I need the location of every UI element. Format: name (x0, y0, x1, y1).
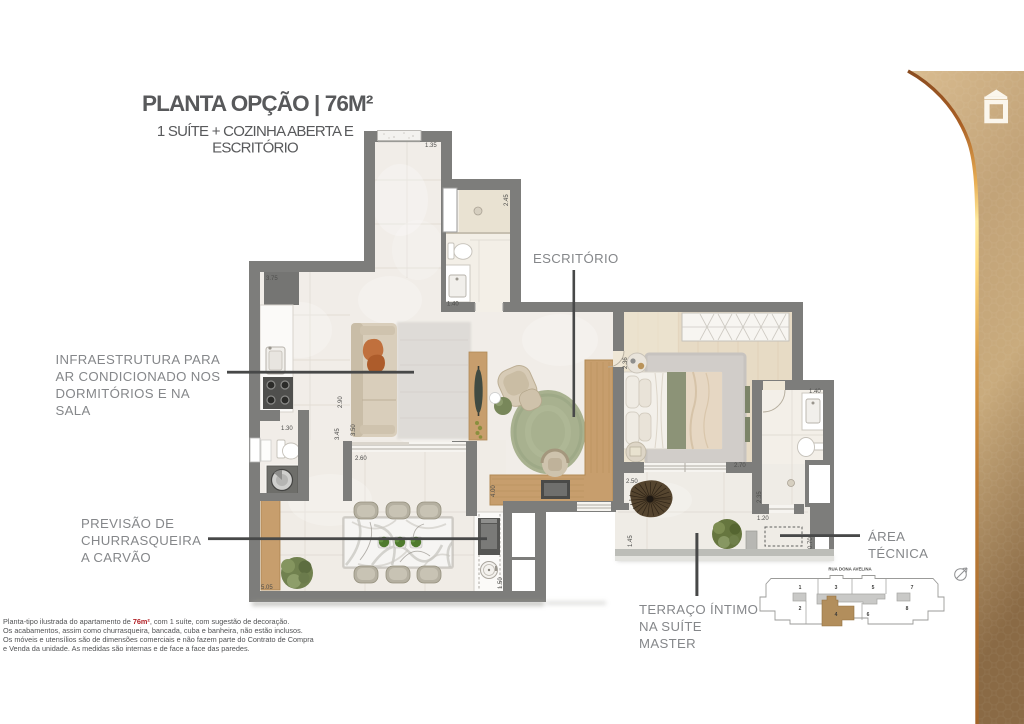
svg-text:2.60: 2.60 (355, 456, 367, 462)
svg-text:7: 7 (911, 585, 914, 591)
svg-text:2: 2 (799, 606, 802, 612)
svg-text:1.50: 1.50 (498, 577, 504, 589)
svg-text:2.90: 2.90 (338, 396, 344, 408)
svg-text:Os acabamentos, assim como chu: Os acabamentos, assim como churrasqueira… (3, 626, 303, 635)
svg-text:1.45: 1.45 (628, 535, 634, 547)
svg-text:1: 1 (799, 585, 802, 591)
svg-text:0.70: 0.70 (808, 537, 814, 549)
svg-text:e Venda da unidade. As medidas: e Venda da unidade. As medidas são inter… (3, 644, 250, 653)
svg-text:PREVISÃO DE: PREVISÃO DE (81, 516, 174, 531)
svg-text:NA SUÍTE: NA SUÍTE (639, 619, 702, 634)
svg-text:DORMITÓRIOS E NA: DORMITÓRIOS E NA (56, 386, 191, 401)
svg-text:ESCRITÓRIO: ESCRITÓRIO (212, 140, 298, 157)
svg-text:1.20: 1.20 (757, 516, 769, 522)
svg-text:1.40: 1.40 (809, 389, 821, 395)
svg-text:RUA DONA AVELINA: RUA DONA AVELINA (828, 567, 872, 572)
svg-text:2.70: 2.70 (734, 463, 746, 469)
svg-text:MASTER: MASTER (639, 636, 696, 651)
svg-text:3.45: 3.45 (335, 428, 341, 440)
svg-text:SALA: SALA (56, 403, 91, 418)
svg-text:2.35: 2.35 (757, 491, 763, 503)
svg-text:3.50: 3.50 (351, 424, 357, 436)
svg-text:2.50: 2.50 (626, 479, 638, 485)
svg-text:1.30: 1.30 (281, 426, 293, 432)
svg-text:2.36: 2.36 (623, 357, 629, 369)
svg-text:ÁREA: ÁREA (868, 529, 905, 544)
svg-text:Planta-tipo ilustrada do apart: Planta-tipo ilustrada do apartamento de … (3, 617, 289, 626)
svg-text:PLANTA OPÇÃO | 76M²: PLANTA OPÇÃO | 76M² (142, 91, 374, 116)
svg-text:TERRAÇO ÍNTIMO: TERRAÇO ÍNTIMO (639, 602, 758, 617)
svg-text:8: 8 (906, 606, 909, 612)
svg-text:2.45: 2.45 (504, 194, 510, 206)
svg-text:AR CONDICIONADO NOS: AR CONDICIONADO NOS (56, 369, 221, 384)
svg-text:1 SUÍTE + COZINHA ABERTA E: 1 SUÍTE + COZINHA ABERTA E (157, 123, 354, 140)
svg-text:ESCRITÓRIO: ESCRITÓRIO (533, 251, 619, 266)
svg-text:INFRAESTRUTURA PARA: INFRAESTRUTURA PARA (56, 352, 221, 367)
svg-text:Os móveis e utensílios são de: Os móveis e utensílios são de dimensões … (3, 635, 315, 644)
svg-text:4.00: 4.00 (491, 485, 497, 497)
svg-text:CHURRASQUEIRA: CHURRASQUEIRA (81, 533, 201, 548)
svg-text:A CARVÃO: A CARVÃO (81, 550, 151, 565)
svg-text:4: 4 (835, 612, 838, 618)
svg-text:3: 3 (835, 585, 838, 591)
svg-text:1.40: 1.40 (447, 302, 459, 308)
svg-text:6: 6 (867, 612, 870, 618)
svg-text:1.35: 1.35 (425, 143, 437, 149)
svg-text:3.75: 3.75 (266, 276, 278, 282)
svg-text:5: 5 (872, 585, 875, 591)
svg-text:5.05: 5.05 (261, 585, 273, 591)
svg-text:TÉCNICA: TÉCNICA (868, 546, 928, 561)
